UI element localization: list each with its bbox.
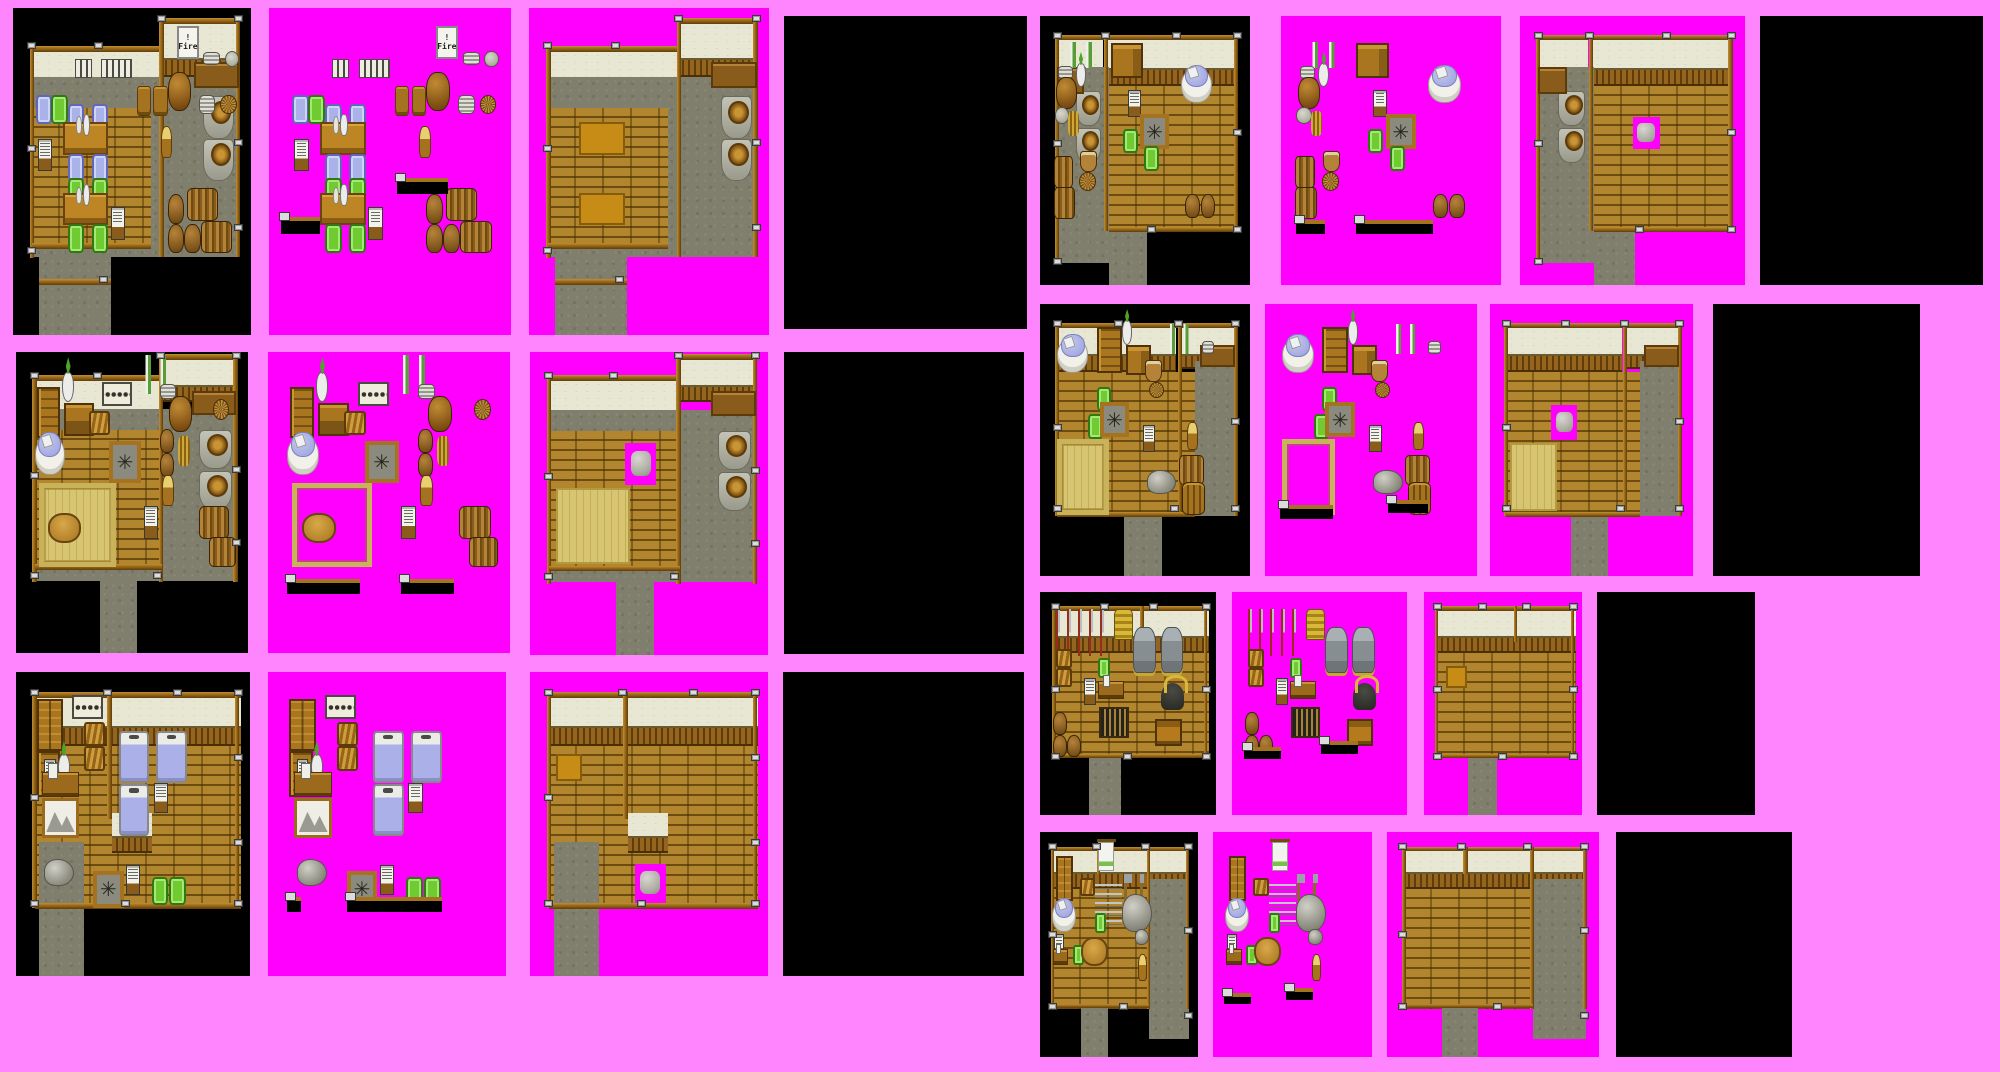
resize-handle — [27, 42, 36, 49]
beam-h — [1109, 227, 1237, 232]
hearth — [1140, 114, 1169, 149]
armor — [1352, 627, 1375, 674]
table-low — [302, 513, 336, 543]
resize-handle — [1398, 843, 1407, 850]
desk-set — [1226, 949, 1242, 965]
futon — [1282, 338, 1314, 373]
phone — [38, 139, 52, 172]
stone — [1149, 879, 1189, 1039]
jar — [1201, 194, 1216, 218]
wall — [1437, 611, 1576, 638]
bed — [373, 784, 404, 836]
hay — [1056, 668, 1072, 687]
hearth — [1325, 402, 1355, 437]
resize-handle — [1569, 686, 1578, 693]
stone — [1533, 879, 1586, 1039]
pillar — [1147, 847, 1150, 1009]
resize-handle — [1170, 505, 1179, 512]
resize-handle — [1523, 843, 1532, 850]
resize-handle — [1172, 32, 1181, 39]
resize-handle — [1534, 32, 1543, 39]
pillar — [1051, 847, 1054, 1009]
stone — [39, 257, 110, 335]
hay — [337, 746, 358, 770]
armor-y — [1114, 609, 1133, 640]
resize-handle — [1184, 1012, 1193, 1019]
resize-handle — [1569, 753, 1578, 760]
bowl — [484, 51, 499, 67]
porch — [347, 897, 442, 912]
basket — [220, 95, 237, 115]
panel-e-objects — [1265, 304, 1477, 576]
resize-handle — [232, 466, 241, 473]
panel-g-composite — [1040, 832, 1198, 1057]
screen — [1099, 707, 1129, 738]
hay — [89, 411, 110, 435]
resize-handle — [1051, 753, 1060, 760]
resize-handle — [1727, 129, 1736, 136]
panel-f-objects — [1232, 592, 1407, 815]
firewood — [446, 188, 477, 221]
resize-handle — [1123, 753, 1132, 760]
resize-handle — [234, 139, 243, 146]
firewood — [187, 188, 218, 221]
panel-a-composite: ! Fire — [13, 8, 251, 335]
resize-handle — [1233, 32, 1242, 39]
phone — [1084, 678, 1096, 705]
porch — [1244, 747, 1281, 759]
panel-a-black — [784, 16, 1027, 329]
resize-handle — [751, 352, 760, 359]
stone — [554, 842, 599, 976]
phone — [144, 506, 158, 539]
hay — [337, 722, 358, 746]
panel-f-composite — [1040, 592, 1216, 815]
resize-handle — [1048, 843, 1057, 850]
futon — [1225, 901, 1249, 933]
plates — [463, 52, 480, 65]
wainscot — [1592, 70, 1732, 86]
pillar — [1463, 847, 1467, 874]
resize-handle — [1457, 843, 1466, 850]
stool — [137, 86, 151, 115]
pot-big — [1056, 77, 1077, 109]
hearth — [365, 441, 399, 483]
resize-handle — [234, 900, 243, 907]
resize-handle — [1534, 258, 1543, 265]
stove — [1076, 91, 1101, 126]
hay — [84, 746, 105, 770]
resize-handle — [751, 839, 760, 846]
helmet — [1353, 683, 1376, 710]
firewood — [1054, 187, 1075, 219]
resize-handle — [1053, 505, 1062, 512]
jar — [1185, 194, 1200, 218]
beam-h — [1404, 1004, 1533, 1008]
patch — [556, 754, 582, 781]
resize-handle — [544, 689, 553, 696]
straw — [1311, 111, 1322, 135]
resize-handle — [751, 689, 760, 696]
jar — [426, 224, 443, 253]
jar — [418, 453, 433, 477]
resize-handle — [637, 900, 646, 907]
hay — [84, 722, 105, 746]
pillar — [623, 692, 628, 820]
phone — [126, 865, 140, 895]
resize-handle — [1119, 1003, 1128, 1010]
resize-handle — [1092, 843, 1101, 850]
screen — [1291, 707, 1321, 738]
resize-handle — [1048, 1003, 1057, 1010]
vase — [62, 372, 74, 402]
phone — [154, 783, 168, 813]
firewood — [1405, 455, 1430, 485]
phone — [1276, 678, 1288, 705]
panel-g-black — [1616, 832, 1792, 1057]
cushion-g — [92, 224, 109, 253]
resize-handle — [1202, 603, 1211, 610]
jar — [160, 453, 174, 477]
porch — [281, 217, 320, 233]
hole — [1551, 405, 1577, 440]
bowl — [1055, 107, 1070, 123]
resize-handle — [93, 372, 102, 379]
straw — [437, 436, 449, 466]
vase — [1318, 63, 1329, 87]
wainscot — [1506, 356, 1622, 372]
cushion-g — [1095, 913, 1106, 933]
hay — [344, 411, 366, 435]
porch — [1296, 220, 1325, 233]
resize-handle — [1478, 603, 1487, 610]
resize-handle — [544, 794, 553, 801]
panel-c-black — [783, 672, 1024, 976]
sign-fire: ! Fire — [436, 26, 458, 59]
futon — [1057, 338, 1089, 373]
table-low — [1081, 937, 1108, 966]
resize-handle — [1398, 1003, 1407, 1010]
plates — [1428, 341, 1441, 355]
cabinet — [1356, 43, 1389, 78]
beam-h — [549, 903, 758, 908]
panel-d-objects — [1281, 16, 1501, 285]
resize-handle — [1580, 927, 1589, 934]
wood — [1594, 86, 1731, 231]
resize-handle — [751, 467, 760, 474]
resize-handle — [157, 15, 166, 22]
bed — [119, 784, 149, 836]
candle — [1187, 422, 1198, 449]
jar — [160, 429, 174, 453]
resize-handle — [1522, 603, 1531, 610]
resize-handle — [751, 754, 760, 761]
resize-handle — [1561, 320, 1570, 327]
resize-handle — [609, 372, 618, 379]
beam-h — [1506, 512, 1640, 517]
candle — [161, 126, 173, 159]
hearth — [93, 871, 123, 907]
resize-handle — [1585, 32, 1594, 39]
pillar — [235, 692, 240, 908]
resize-handle — [1051, 686, 1060, 693]
stone — [555, 257, 627, 335]
jar — [418, 429, 433, 453]
bucket — [1080, 151, 1097, 173]
candle — [1312, 954, 1322, 981]
resize-handle — [752, 224, 761, 231]
resize-handle — [1053, 320, 1062, 327]
wall — [1506, 328, 1622, 355]
picture — [294, 798, 332, 838]
panel-e-composite — [1040, 304, 1250, 576]
wainscot — [549, 728, 758, 746]
plant-hang — [1390, 324, 1418, 354]
resize-handle — [1433, 686, 1442, 693]
wall — [628, 813, 668, 837]
resize-handle — [1433, 753, 1442, 760]
jar — [1053, 712, 1067, 734]
desk-set — [42, 772, 79, 796]
pillar — [1435, 606, 1438, 758]
cushion-g — [1144, 146, 1159, 170]
wood — [1404, 889, 1533, 1008]
picture — [42, 798, 79, 838]
resize-handle — [1502, 505, 1511, 512]
panel-c-floor — [530, 672, 768, 976]
cushion-g — [169, 877, 185, 904]
porch — [287, 897, 301, 912]
resize-handle — [1053, 140, 1062, 147]
window-slats — [75, 59, 92, 79]
stove — [721, 96, 752, 139]
barrel — [1182, 482, 1205, 515]
hay — [1056, 649, 1072, 668]
resize-handle — [232, 539, 241, 546]
cushion-g — [68, 224, 85, 253]
panel-b-black — [784, 352, 1024, 654]
wall — [160, 360, 237, 387]
phone — [380, 865, 394, 895]
resize-handle — [1202, 753, 1211, 760]
jar — [184, 224, 201, 253]
panel-e-black — [1713, 304, 1920, 576]
phone — [1128, 90, 1141, 117]
resize-handle — [1184, 843, 1193, 850]
resize-handle — [1635, 226, 1644, 233]
patch — [579, 193, 625, 226]
sign-kanji — [325, 695, 356, 719]
pillar — [1514, 606, 1517, 642]
window-slats — [332, 59, 349, 79]
firewood — [469, 537, 498, 567]
resize-handle — [1114, 320, 1123, 327]
resize-handle — [1675, 320, 1684, 327]
bucket — [1145, 360, 1162, 382]
sign-fire: ! Fire — [177, 26, 198, 59]
cushion-g — [349, 224, 366, 253]
resize-handle — [234, 224, 243, 231]
jar — [168, 194, 185, 223]
hole — [1633, 117, 1660, 149]
armor — [1133, 627, 1156, 674]
wainscot — [628, 838, 668, 853]
pillar — [1571, 606, 1574, 758]
phone — [1369, 425, 1382, 452]
rock — [1308, 929, 1322, 945]
porch — [1356, 220, 1433, 233]
resize-handle — [1727, 226, 1736, 233]
panel-d-black — [1760, 16, 1983, 285]
resize-handle — [99, 276, 108, 283]
beam-h — [1053, 1004, 1149, 1008]
jar — [1433, 194, 1448, 218]
porch — [1224, 993, 1251, 1004]
wardrobe — [1229, 856, 1246, 901]
table — [63, 122, 108, 155]
pillar — [677, 18, 682, 257]
table — [63, 193, 108, 226]
desk-set — [1053, 949, 1069, 965]
resize-handle — [543, 145, 552, 152]
tatami — [1510, 443, 1557, 511]
cushion-g — [325, 224, 342, 253]
panel-g-objects — [1213, 832, 1372, 1057]
resize-handle — [1100, 603, 1109, 610]
resize-handle — [156, 352, 165, 359]
firewood — [201, 221, 232, 254]
resize-handle — [1616, 505, 1625, 512]
resize-handle — [1433, 603, 1442, 610]
pot-big — [428, 396, 452, 432]
resize-handle — [1493, 1003, 1502, 1010]
firewood — [1295, 187, 1317, 219]
tatami — [556, 488, 630, 564]
shelf-top — [1538, 67, 1567, 94]
resize-handle — [544, 372, 553, 379]
resize-handle — [1569, 603, 1578, 610]
futon — [1181, 68, 1213, 103]
wardrobe — [37, 699, 63, 751]
wall — [1404, 851, 1586, 874]
basket — [1375, 382, 1390, 398]
patch — [1446, 666, 1467, 688]
shelf-top — [711, 62, 757, 88]
plates — [160, 384, 176, 399]
resize-handle — [674, 352, 683, 359]
candle — [419, 126, 431, 159]
bed — [411, 731, 442, 783]
stool — [395, 86, 410, 115]
resize-handle — [30, 372, 39, 379]
phone — [368, 207, 383, 240]
wardrobe — [289, 699, 315, 751]
resize-handle — [689, 689, 698, 696]
phone — [294, 139, 309, 172]
stove — [721, 139, 752, 182]
rock — [297, 859, 328, 886]
hearth — [1386, 114, 1417, 149]
resize-handle — [121, 900, 130, 907]
patch — [579, 122, 625, 155]
cushion-b — [292, 95, 309, 124]
sign-kanji — [102, 382, 132, 406]
resize-handle — [1231, 320, 1240, 327]
resize-handle — [543, 247, 552, 254]
table-low — [48, 513, 80, 543]
pillar — [107, 692, 112, 820]
porch — [287, 579, 360, 594]
pillar — [753, 692, 758, 908]
firewood — [1295, 156, 1315, 188]
pot-big — [426, 72, 450, 111]
resize-handle — [1502, 320, 1511, 327]
bucket — [1371, 360, 1388, 382]
jar — [168, 224, 185, 253]
wall — [549, 381, 680, 413]
phone — [401, 506, 416, 539]
jar — [1449, 194, 1464, 218]
stone — [1468, 758, 1496, 815]
straw — [1068, 111, 1079, 135]
panel-c-composite — [16, 672, 250, 976]
resize-handle — [670, 573, 679, 580]
stone — [1109, 231, 1147, 285]
resize-handle — [1141, 843, 1150, 850]
panel-b-floor — [530, 352, 768, 655]
stove — [718, 431, 751, 470]
resize-handle — [1231, 418, 1240, 425]
basket — [1079, 172, 1096, 191]
table — [320, 122, 366, 155]
cushion-g — [1123, 129, 1138, 153]
beam-h — [35, 903, 241, 908]
resize-handle — [615, 276, 624, 283]
panel-d-composite — [1040, 16, 1250, 285]
rock — [1373, 470, 1403, 494]
cushion-g — [1368, 129, 1383, 153]
jar — [1067, 735, 1081, 757]
hay — [1080, 878, 1096, 896]
panel-d-floor — [1520, 16, 1745, 285]
armor — [1325, 627, 1348, 674]
resize-handle — [30, 794, 39, 801]
wall — [549, 698, 758, 728]
resize-handle — [1662, 32, 1671, 39]
panel-f-floor — [1424, 592, 1582, 815]
pot-big — [169, 396, 192, 432]
resize-handle — [1053, 32, 1062, 39]
porch — [401, 579, 454, 594]
resize-handle — [1174, 320, 1183, 327]
bed — [156, 731, 186, 783]
desk-set — [1290, 681, 1316, 699]
resize-handle — [544, 473, 553, 480]
panel-f-black — [1597, 592, 1755, 815]
stone — [1640, 361, 1679, 516]
plates — [1202, 341, 1215, 355]
bucket — [1323, 151, 1341, 173]
bowl — [225, 51, 239, 67]
beam-h — [549, 566, 680, 571]
pillar — [753, 18, 758, 257]
porch — [1280, 505, 1333, 519]
resize-handle — [1184, 927, 1193, 934]
towel — [1272, 842, 1288, 871]
window-slats — [101, 59, 132, 79]
dresser — [1097, 327, 1122, 373]
resize-handle — [1101, 32, 1110, 39]
